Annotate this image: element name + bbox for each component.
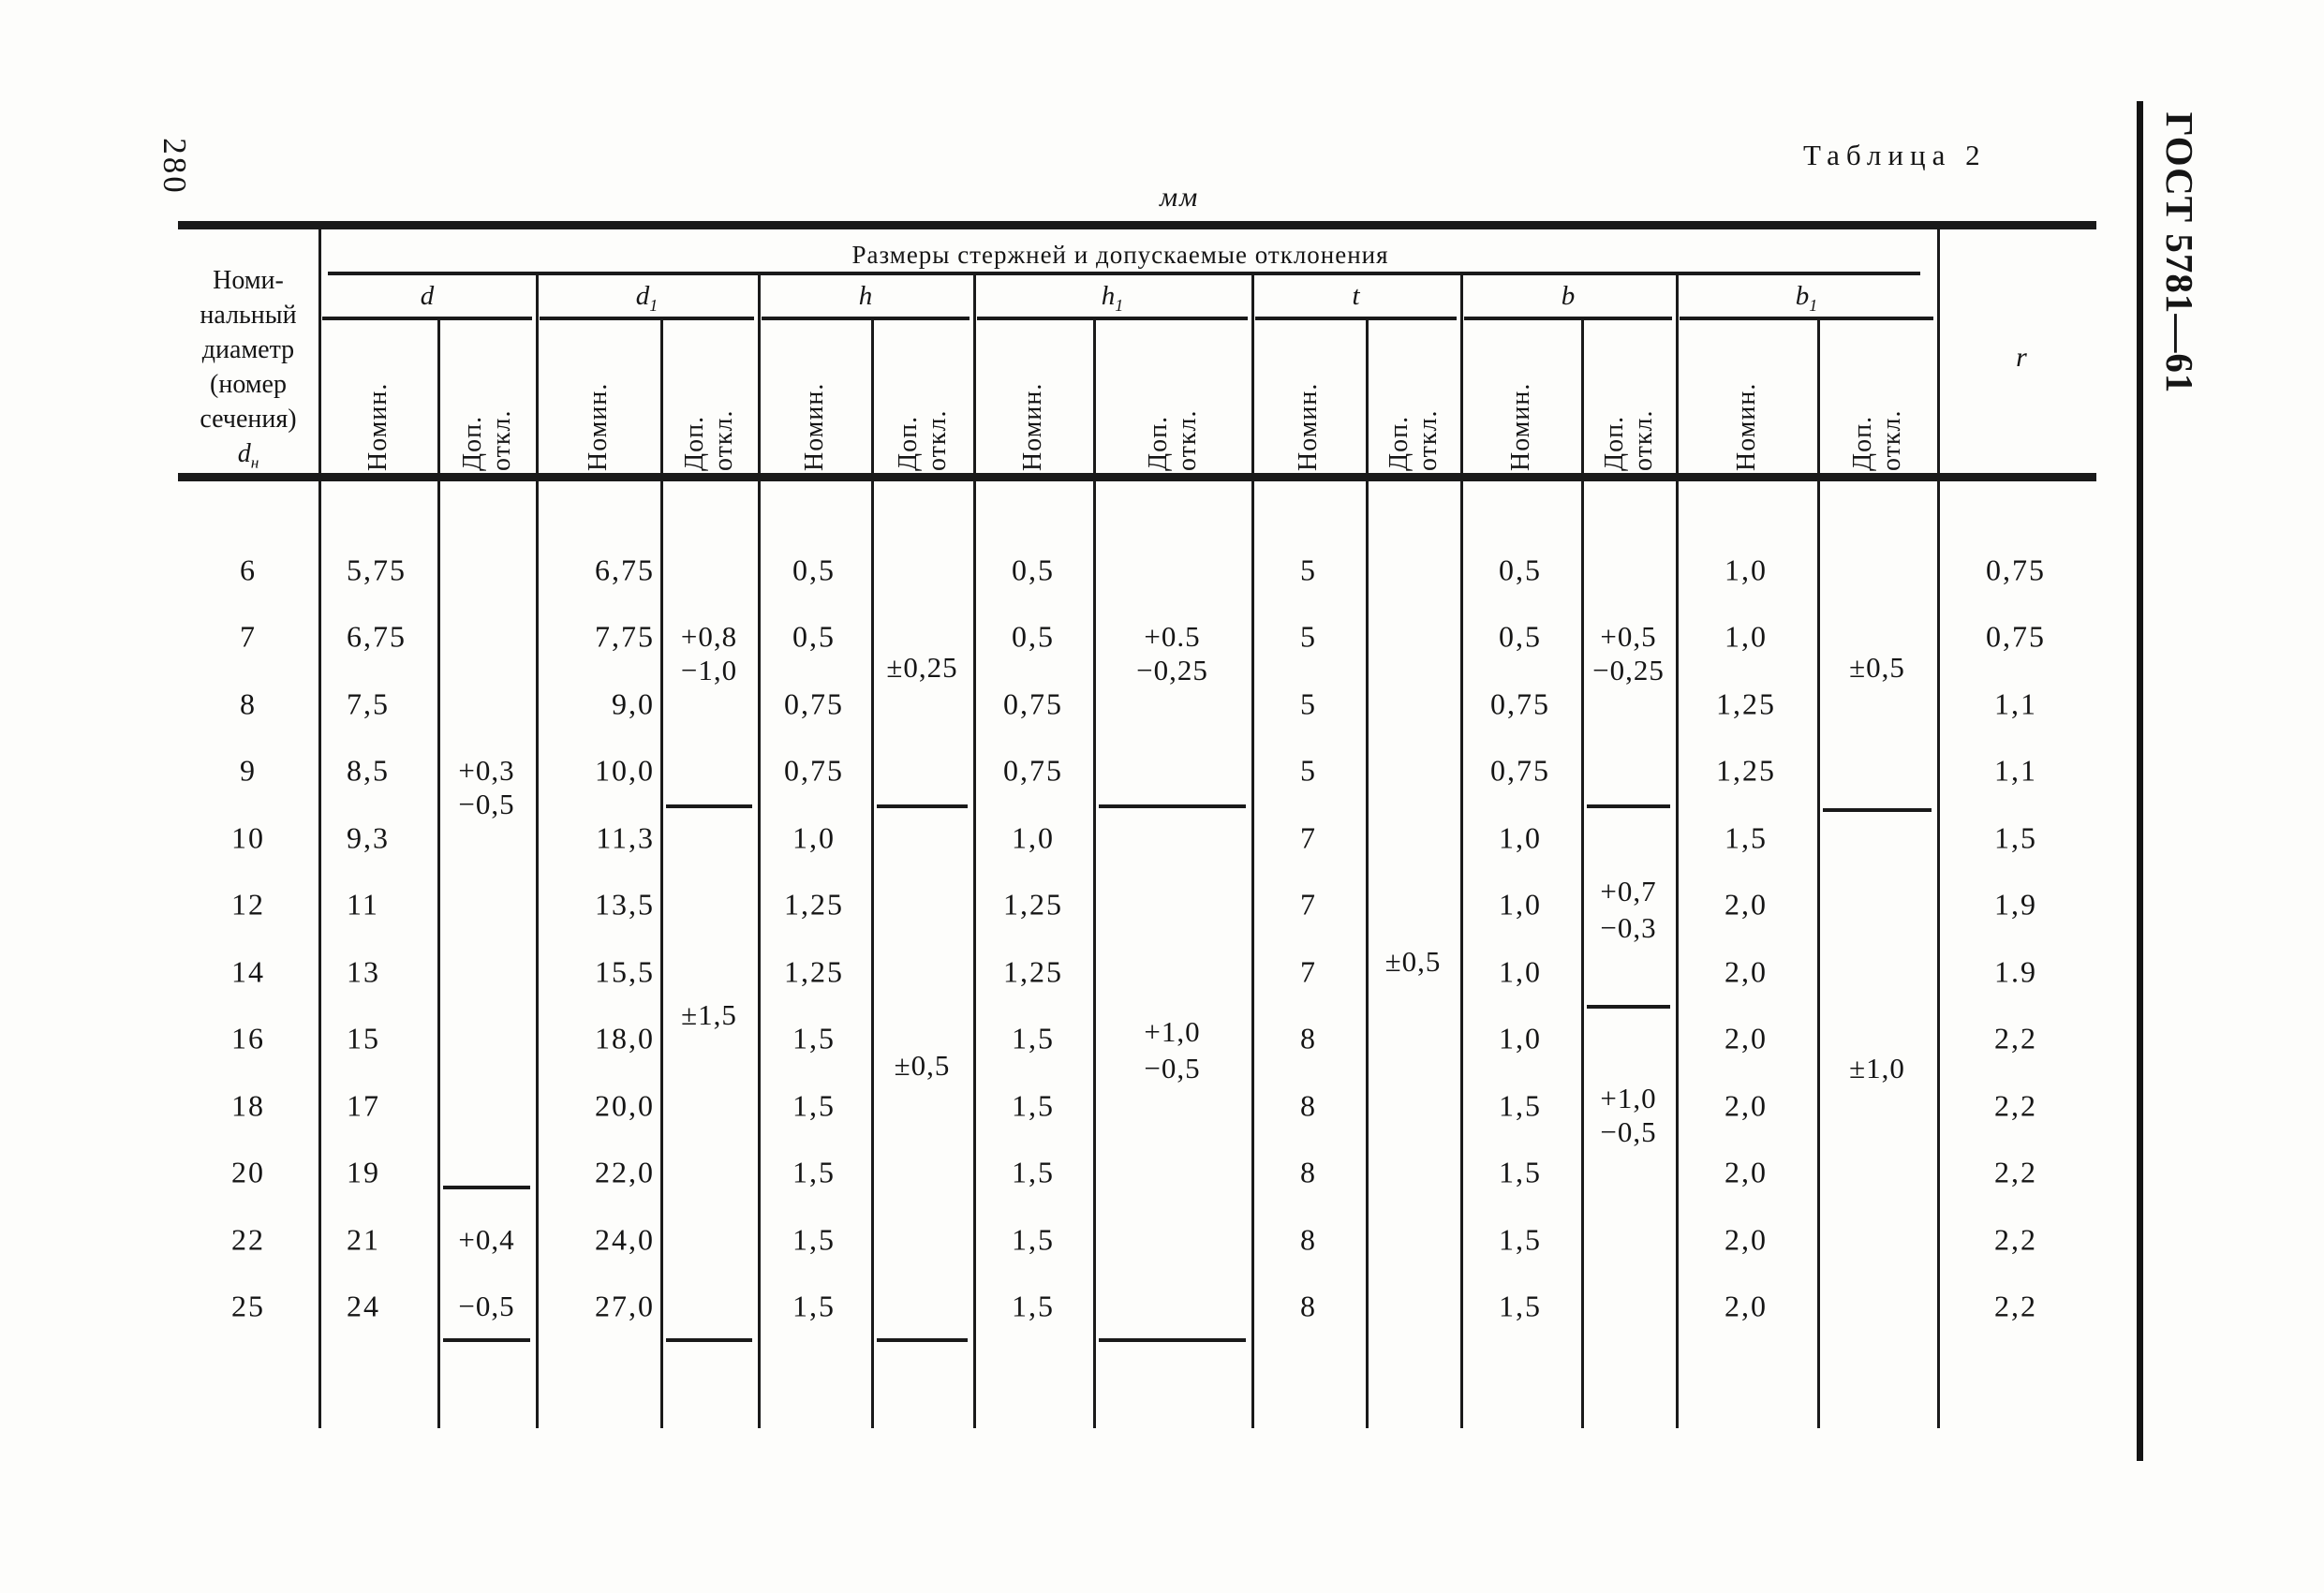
group-divider — [973, 272, 976, 1428]
cell-b: 0,5 — [1499, 553, 1542, 588]
cell-dn: 8 — [240, 687, 257, 722]
tolerance-column-label: Доп. откл. — [1144, 331, 1202, 471]
cell-b: 1,5 — [1499, 1290, 1542, 1324]
cell-d: 17 — [347, 1089, 380, 1124]
cell-d: 11 — [347, 888, 379, 922]
cell-h: 0,5 — [792, 553, 836, 588]
tolerance-value-b: −0,3 — [1600, 911, 1656, 945]
cell-r: 2,2 — [1994, 1089, 2037, 1124]
cell-b: 1,5 — [1499, 1223, 1542, 1258]
cell-h: 1,5 — [792, 1022, 836, 1056]
cell-r: 2,2 — [1994, 1223, 2037, 1258]
tolerance-value-t: ±0,5 — [1385, 945, 1442, 979]
cell-r: 1,9 — [1994, 888, 2037, 922]
tolerance-value-b: +0,5 — [1600, 620, 1656, 654]
cell-d: 21 — [347, 1223, 380, 1258]
cell-h: 1,0 — [792, 821, 836, 856]
cell-b1: 1,25 — [1716, 754, 1776, 789]
tolerance-value-b: −0,25 — [1592, 654, 1665, 687]
tolerance-value-h1: +1,0 — [1144, 1015, 1200, 1049]
subcolumn-divider — [660, 317, 663, 1428]
cell-t: 8 — [1300, 1156, 1317, 1190]
column-group-symbol-b: b — [1562, 281, 1576, 316]
cell-t: 8 — [1300, 1290, 1317, 1324]
tolerance-group-separator — [877, 804, 968, 808]
cell-b1: 1,25 — [1716, 687, 1776, 722]
tolerance-group-bottom-line — [877, 1338, 968, 1342]
cell-t: 5 — [1300, 754, 1317, 789]
group-symbol-letter: b — [1562, 281, 1576, 311]
tolerance-group-bottom-line — [666, 1338, 752, 1342]
cell-h1: 1,5 — [1012, 1156, 1055, 1190]
group-symbol-letter: b — [1796, 281, 1810, 311]
group-symbol-subscript: 1 — [649, 296, 658, 315]
table-caption: Таблица 2 — [1803, 139, 1987, 172]
group-header-underline — [762, 317, 970, 320]
subcolumn-divider — [437, 317, 440, 1428]
tolerance-column-label: Доп. откл. — [458, 331, 516, 471]
group-divider — [1460, 272, 1463, 1428]
tolerance-column-label: Доп. откл. — [1384, 331, 1443, 471]
cell-d: 13 — [347, 955, 380, 990]
cell-d: 7,5 — [347, 687, 390, 722]
cell-d: 15 — [347, 1022, 380, 1056]
cell-dn: 22 — [231, 1223, 265, 1258]
cell-b: 0,75 — [1490, 687, 1550, 722]
cell-h1: 1,5 — [1012, 1223, 1055, 1258]
cell-dn: 16 — [231, 1022, 265, 1056]
header-bottom-border — [178, 473, 2096, 481]
tolerance-group-separator — [1823, 808, 1932, 812]
subcolumn-divider — [1581, 317, 1584, 1428]
tolerance-value-b: −0,5 — [1600, 1115, 1656, 1149]
cell-d: 9,3 — [347, 821, 390, 856]
cell-h: 1,5 — [792, 1156, 836, 1190]
cell-d1: 20,0 — [595, 1089, 655, 1124]
tolerance-value-b1: ±1,0 — [1849, 1052, 1905, 1085]
row-header-symbol-letter: d — [238, 439, 251, 468]
tolerance-column-label: Доп. откл. — [1848, 331, 1906, 471]
r-column-divider — [1937, 228, 1940, 1428]
cell-h: 1,25 — [784, 955, 844, 990]
tolerance-value-d1: ±1,5 — [681, 998, 737, 1032]
row-header-line: диаметр — [176, 332, 320, 367]
cell-r: 1,5 — [1994, 821, 2037, 856]
cell-b: 1,0 — [1499, 955, 1542, 990]
group-symbol-letter: t — [1352, 281, 1359, 311]
row-header-label: Номи-нальныйдиаметр(номерсечения)dн — [176, 263, 320, 480]
cell-r: 2,2 — [1994, 1156, 2037, 1190]
cell-t: 5 — [1300, 687, 1317, 722]
cell-h: 1,25 — [784, 888, 844, 922]
cell-h1: 1,5 — [1012, 1089, 1055, 1124]
row-header-symbol: dн — [176, 436, 320, 480]
nominal-column-label: Номин. — [1018, 331, 1048, 471]
tolerance-column-label: Доп. откл. — [894, 331, 952, 471]
tolerance-value-d: +0,4 — [458, 1223, 514, 1257]
cell-r: 1,1 — [1994, 754, 2037, 789]
row-header-line: (номер — [176, 367, 320, 402]
document-page: 280 Таблица 2 мм ГОСТ 5781—61 Размеры ст… — [0, 0, 2324, 1593]
tolerance-value-h1: +0.5 — [1144, 620, 1200, 654]
cell-d1: 13,5 — [595, 888, 655, 922]
tolerance-group-separator — [1587, 1005, 1670, 1009]
tolerance-group-separator — [666, 804, 752, 808]
cell-t: 8 — [1300, 1223, 1317, 1258]
tolerance-value-h1: −0,25 — [1136, 654, 1208, 687]
row-header-line: Номи- — [176, 263, 320, 298]
column-group-symbol-b1: b1 — [1796, 281, 1817, 316]
cell-r: 0,75 — [1986, 553, 2046, 588]
cell-dn: 9 — [240, 754, 257, 789]
cell-b: 1,0 — [1499, 1022, 1542, 1056]
cell-dn: 25 — [231, 1290, 265, 1324]
row-header-line: сечения) — [176, 402, 320, 436]
tolerance-value-d1: −1,0 — [681, 654, 737, 687]
cell-r: 2,2 — [1994, 1290, 2037, 1324]
cell-h: 0,75 — [784, 687, 844, 722]
tolerance-value-d: +0,3 — [458, 754, 514, 788]
cell-b: 1,0 — [1499, 821, 1542, 856]
cell-d1: 9,0 — [612, 687, 655, 722]
tolerance-column-label: Доп. откл. — [680, 331, 738, 471]
cell-b1: 2,0 — [1724, 888, 1768, 922]
cell-d: 19 — [347, 1156, 380, 1190]
cell-d: 8,5 — [347, 754, 390, 789]
group-symbol-letter: h — [859, 281, 873, 311]
cell-t: 8 — [1300, 1089, 1317, 1124]
cell-d1: 24,0 — [595, 1223, 655, 1258]
cell-dn: 12 — [231, 888, 265, 922]
cell-h1: 0,5 — [1012, 620, 1055, 655]
group-header-underline — [977, 317, 1248, 320]
cell-b: 1,0 — [1499, 888, 1542, 922]
tolerance-value-h: ±0,25 — [886, 651, 957, 685]
cell-d1: 22,0 — [595, 1156, 655, 1190]
cell-h1: 0,75 — [1003, 754, 1063, 789]
tolerance-value-b: +0,7 — [1600, 875, 1656, 908]
cell-r: 0,75 — [1986, 620, 2046, 655]
cell-t: 7 — [1300, 821, 1317, 856]
nominal-column-label: Номин. — [584, 331, 614, 471]
cell-t: 5 — [1300, 620, 1317, 655]
cell-h: 0,75 — [784, 754, 844, 789]
group-symbol-letter: d — [421, 281, 435, 311]
tolerance-value-b1: ±0,5 — [1849, 651, 1905, 685]
cell-h1: 1,25 — [1003, 888, 1063, 922]
subcolumn-divider — [1366, 317, 1369, 1428]
nominal-column-label: Номин. — [363, 331, 393, 471]
group-symbol-letter: h — [1102, 281, 1116, 311]
cell-h1: 1,0 — [1012, 821, 1055, 856]
page-number: 280 — [155, 115, 193, 218]
tolerance-value-d: −0,5 — [458, 788, 514, 821]
tolerance-value-d: −0,5 — [458, 1290, 514, 1323]
tolerance-group-bottom-line — [1099, 1338, 1246, 1342]
row-header-line: нальный — [176, 298, 320, 332]
units-label: мм — [1160, 182, 1199, 214]
cell-b1: 2,0 — [1724, 1156, 1768, 1190]
tolerance-group-separator — [1099, 804, 1246, 808]
column-group-symbol-d: d — [421, 281, 435, 316]
cell-h1: 1,5 — [1012, 1022, 1055, 1056]
cell-d1: 11,3 — [596, 821, 655, 856]
cell-b: 1,5 — [1499, 1156, 1542, 1190]
cell-dn: 18 — [231, 1089, 265, 1124]
cell-b1: 2,0 — [1724, 955, 1768, 990]
cell-r: 1,1 — [1994, 687, 2037, 722]
subcolumn-divider — [871, 317, 874, 1428]
cell-b1: 1,0 — [1724, 620, 1768, 655]
cell-dn: 7 — [240, 620, 257, 655]
tolerance-value-b: +1,0 — [1600, 1082, 1656, 1115]
cell-dn: 6 — [240, 553, 257, 588]
cell-d1: 18,0 — [595, 1022, 655, 1056]
group-header-underline — [322, 317, 532, 320]
cell-b: 0,75 — [1490, 754, 1550, 789]
cell-b1: 2,0 — [1724, 1022, 1768, 1056]
nominal-column-label: Номин. — [1506, 331, 1536, 471]
cell-r: 2,2 — [1994, 1022, 2037, 1056]
cell-t: 5 — [1300, 553, 1317, 588]
group-symbol-subscript: 1 — [1809, 296, 1817, 315]
group-divider — [536, 272, 539, 1428]
tolerance-value-h: ±0,5 — [895, 1049, 951, 1083]
nominal-column-label: Номин. — [1732, 331, 1762, 471]
cell-h: 0,5 — [792, 620, 836, 655]
cell-d1: 7,75 — [595, 620, 655, 655]
group-header-underline — [1680, 317, 1933, 320]
group-symbol-subscript: 1 — [1115, 296, 1123, 315]
row-header-symbol-subscript: н — [251, 454, 259, 472]
cell-b: 1,5 — [1499, 1089, 1542, 1124]
cell-b1: 1,0 — [1724, 553, 1768, 588]
nominal-column-label: Номин. — [800, 331, 830, 471]
cell-d1: 6,75 — [595, 553, 655, 588]
cell-t: 8 — [1300, 1022, 1317, 1056]
cell-d: 6,75 — [347, 620, 407, 655]
cell-d1: 10,0 — [595, 754, 655, 789]
cell-t: 7 — [1300, 888, 1317, 922]
column-group-symbol-t: t — [1352, 281, 1359, 316]
table-span-header: Размеры стержней и допускаемые отклонени… — [558, 241, 1682, 270]
cell-r: 1.9 — [1994, 955, 2037, 990]
subcolumn-divider — [1093, 317, 1096, 1428]
cell-b1: 2,0 — [1724, 1290, 1768, 1324]
cell-dn: 14 — [231, 955, 265, 990]
cell-d: 24 — [347, 1290, 380, 1324]
cell-b1: 2,0 — [1724, 1223, 1768, 1258]
cell-t: 7 — [1300, 955, 1317, 990]
group-header-underline — [1255, 317, 1457, 320]
cell-h1: 0,5 — [1012, 553, 1055, 588]
tolerance-group-separator — [443, 1186, 530, 1189]
group-divider — [1251, 272, 1254, 1428]
subcolumn-divider — [1817, 317, 1820, 1428]
cell-h: 1,5 — [792, 1290, 836, 1324]
column-group-symbol-h1: h1 — [1102, 281, 1123, 316]
cell-dn: 10 — [231, 821, 265, 856]
cell-d1: 15,5 — [595, 955, 655, 990]
tolerance-group-bottom-line — [443, 1338, 530, 1342]
group-divider — [1676, 272, 1679, 1428]
group-divider — [758, 272, 761, 1428]
cell-h1: 1,25 — [1003, 955, 1063, 990]
cell-b1: 1,5 — [1724, 821, 1768, 856]
group-symbol-letter: d — [636, 281, 650, 311]
cell-dn: 20 — [231, 1156, 265, 1190]
cell-h: 1,5 — [792, 1089, 836, 1124]
tolerance-value-d1: +0,8 — [681, 620, 737, 654]
group-header-underline — [540, 317, 754, 320]
standard-reference: ГОСТ 5781—61 — [2154, 98, 2202, 407]
table-top-border — [178, 221, 2096, 229]
span-header-underline — [328, 272, 1920, 275]
nominal-column-label: Номин. — [1294, 331, 1324, 471]
cell-h1: 1,5 — [1012, 1290, 1055, 1324]
column-header-r: r — [2016, 342, 2027, 374]
column-group-symbol-h: h — [859, 281, 873, 316]
tolerance-value-h1: −0,5 — [1144, 1052, 1200, 1085]
group-header-underline — [1464, 317, 1672, 320]
margin-rule-line — [2137, 101, 2143, 1461]
cell-h1: 0,75 — [1003, 687, 1063, 722]
cell-d: 5,75 — [347, 553, 407, 588]
tolerance-group-separator — [1587, 804, 1670, 808]
cell-b: 0,5 — [1499, 620, 1542, 655]
column-group-symbol-d1: d1 — [636, 281, 658, 316]
cell-b1: 2,0 — [1724, 1089, 1768, 1124]
tolerance-column-label: Доп. откл. — [1600, 331, 1658, 471]
cell-h: 1,5 — [792, 1223, 836, 1258]
cell-d1: 27,0 — [595, 1290, 655, 1324]
